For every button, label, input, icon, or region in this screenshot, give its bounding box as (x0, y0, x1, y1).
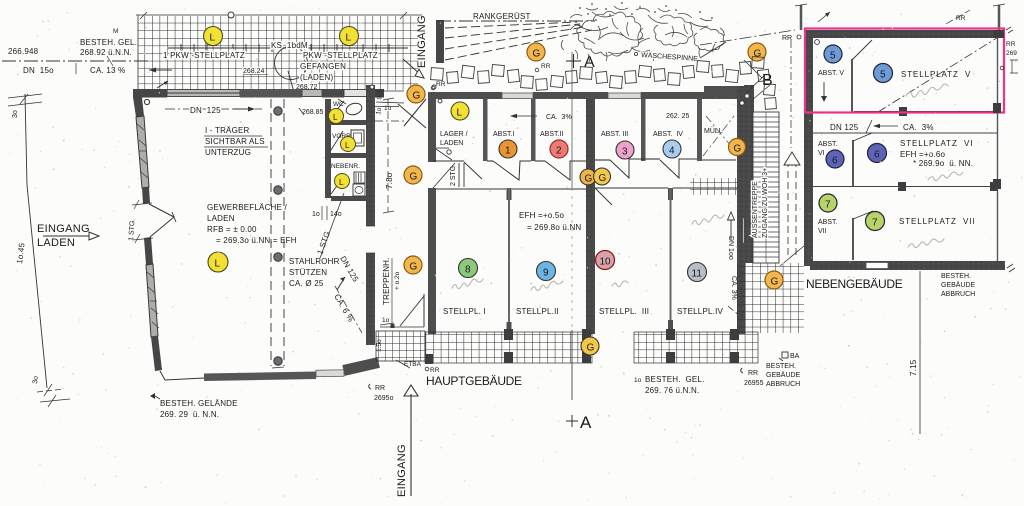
svg-text:G: G (585, 174, 593, 185)
svg-text:7: 7 (872, 218, 878, 229)
svg-text:KS 1bdM: KS 1bdM (271, 41, 308, 50)
svg-text:AUSSENTREPPE: AUSSENTREPPE (752, 181, 759, 238)
svg-text:G: G (734, 144, 742, 155)
svg-text:G: G (410, 172, 418, 183)
svg-text:DN 125: DN 125 (830, 123, 859, 132)
svg-text:STELLPL. III: STELLPL. III (599, 307, 649, 316)
svg-text:1: 1 (505, 146, 511, 157)
svg-text:BESTEH.: BESTEH. (766, 363, 796, 370)
svg-text:ABST. IV: ABST. IV (653, 131, 683, 138)
svg-text:G: G (413, 91, 421, 102)
svg-text:1o: 1o (634, 377, 642, 384)
svg-text:ABST.: ABST. (818, 219, 838, 226)
svg-text:1o: 1o (382, 317, 390, 324)
svg-text:VII: VII (818, 228, 827, 235)
svg-text:1.5o: 1.5o (376, 339, 383, 352)
svg-text:STELLPL.IV: STELLPL.IV (677, 307, 723, 316)
svg-text:RR: RR (436, 81, 446, 88)
svg-text:G: G (410, 262, 418, 273)
svg-text:9: 9 (543, 268, 549, 279)
svg-text:CA. Ø 25: CA. Ø 25 (289, 279, 324, 288)
svg-text:3o: 3o (32, 376, 40, 385)
svg-text:269: 269 (1006, 50, 1017, 57)
svg-text:RR: RR (748, 370, 758, 377)
svg-text:RR: RR (1006, 41, 1016, 48)
svg-text:G: G (533, 49, 541, 60)
svg-text:STELLPLATZ VI: STELLPLATZ VI (900, 139, 973, 148)
svg-text:DN 125: DN 125 (190, 106, 221, 115)
svg-text:6: 6 (874, 150, 880, 161)
svg-text:LADEN: LADEN (440, 140, 463, 147)
svg-text:268.24: 268.24 (243, 68, 265, 75)
svg-text:DN 1oo: DN 1oo (727, 236, 734, 260)
svg-text:L: L (210, 33, 216, 44)
svg-text:269. 29 ü. N.N.: 269. 29 ü. N.N. (160, 410, 219, 419)
svg-text:STELLPLATZ V: STELLPLATZ V (901, 70, 971, 79)
svg-text:= 269.3o ü.NN.= EFH: = 269.3o ü.NN.= EFH (216, 236, 297, 245)
svg-text:UNTERZUG: UNTERZUG (205, 148, 251, 157)
svg-text:RR: RR (541, 63, 551, 70)
svg-text:ABBRUCH: ABBRUCH (766, 381, 800, 388)
svg-text:STELLPL. I: STELLPL. I (443, 307, 486, 316)
svg-text:266.948: 266.948 (8, 47, 39, 56)
svg-text:4: 4 (669, 146, 675, 157)
svg-text:ZUGANG ZU WOH 3+: ZUGANG ZU WOH 3+ (762, 168, 769, 238)
svg-text:GEBÄUDE: GEBÄUDE (941, 281, 976, 289)
svg-text:CA. 3%: CA. 3% (903, 123, 934, 132)
svg-text:14o: 14o (330, 211, 342, 218)
svg-text:HAUPTGEBÄUDE: HAUPTGEBÄUDE (426, 374, 522, 388)
svg-text:1o: 1o (384, 105, 392, 112)
svg-text:26955: 26955 (744, 380, 764, 387)
svg-text:VI: VI (818, 150, 825, 157)
svg-text:RR: RR (430, 367, 440, 374)
svg-text:3: 3 (622, 147, 628, 158)
svg-text:7.15: 7.15 (909, 359, 918, 376)
svg-text:EFH =+o.6o: EFH =+o.6o (900, 150, 945, 159)
svg-text:LADEN: LADEN (37, 237, 75, 249)
svg-text:RR: RR (782, 35, 792, 42)
svg-text:(LADEN): (LADEN) (300, 73, 334, 82)
svg-text:G: G (587, 343, 595, 354)
svg-text:ABST. III: ABST. III (601, 131, 628, 138)
svg-text:RFB = ± 0.00: RFB = ± 0.00 (207, 225, 257, 234)
svg-text:3o: 3o (12, 110, 19, 118)
svg-text:ABST.: ABST. (818, 141, 838, 148)
svg-text:1o: 1o (312, 211, 320, 218)
svg-text:6: 6 (832, 156, 838, 167)
svg-text:PKW -STELLPLATZ: PKW -STELLPLATZ (303, 51, 378, 60)
svg-text:G: G (771, 277, 779, 288)
svg-text:2: 2 (556, 146, 562, 157)
svg-text:I - TRÄGER: I - TRÄGER (205, 126, 250, 135)
svg-text:BESTEH. GELÄNDE: BESTEH. GELÄNDE (160, 399, 238, 408)
svg-text:L: L (215, 259, 221, 270)
svg-text:CA. 13 %: CA. 13 % (90, 66, 125, 75)
svg-text:LADEN: LADEN (207, 214, 235, 223)
svg-text:NEBENGEBÄUDE: NEBENGEBÄUDE (806, 277, 903, 291)
svg-text:RANKGERÜST: RANKGERÜST (473, 12, 531, 21)
svg-text:GEBÄUDE: GEBÄUDE (766, 371, 801, 379)
svg-text:268.85: 268.85 (302, 109, 324, 116)
svg-text:STELLPLATZ VII: STELLPLATZ VII (899, 217, 975, 226)
svg-text:STÜTZEN: STÜTZEN (289, 268, 327, 277)
svg-text:* 269.9o ü. NN.: * 269.9o ü. NN. (913, 159, 973, 168)
svg-text:7: 7 (825, 200, 831, 211)
svg-text:GEWERBEFLÄCHE /: GEWERBEFLÄCHE / (207, 203, 287, 212)
svg-text:262. 25: 262. 25 (666, 113, 689, 120)
svg-text:M: M (113, 28, 118, 35)
svg-text:2 STG: 2 STG (450, 166, 457, 186)
svg-text:NEBENR.: NEBENR. (331, 163, 360, 170)
svg-text:GEFANGEN: GEFANGEN (300, 62, 346, 71)
svg-text:BESTEH. GEL.: BESTEH. GEL. (645, 375, 705, 384)
svg-text:ABST.II: ABST.II (540, 131, 563, 138)
svg-text:2695o: 2695o (374, 395, 394, 402)
svg-text:DN 15o: DN 15o (23, 66, 54, 75)
svg-text:STAHLROHR: STAHLROHR (289, 257, 340, 266)
svg-text:11: 11 (692, 269, 703, 280)
svg-text:268.92 ü.N.N.: 268.92 ü.N.N. (80, 48, 132, 57)
svg-text:7.8o: 7.8o (385, 172, 394, 189)
svg-text:EFH =+o.5o: EFH =+o.5o (519, 211, 564, 220)
svg-text:G: G (599, 173, 607, 184)
svg-text:CA. 3%: CA. 3% (546, 114, 572, 121)
svg-text:L: L (339, 178, 344, 187)
svg-text:B: B (762, 72, 773, 89)
svg-text:BESTEH. GEL.: BESTEH. GEL. (80, 38, 137, 47)
svg-text:EINGANG: EINGANG (37, 223, 90, 235)
svg-text:ABST. V: ABST. V (818, 70, 844, 77)
svg-text:+ o.2o: + o.2o (394, 271, 401, 290)
svg-text:L: L (333, 113, 338, 122)
svg-text:ETBA: ETBA (404, 361, 422, 368)
svg-text:10: 10 (600, 257, 612, 268)
svg-text:L: L (346, 33, 352, 44)
svg-text:BESTEH.: BESTEH. (941, 273, 971, 280)
svg-text:G: G (754, 49, 762, 60)
svg-text:CA. 3%: CA. 3% (730, 276, 737, 300)
svg-text:TREPPENH.: TREPPENH. (382, 257, 391, 305)
svg-text:A: A (580, 413, 592, 432)
svg-text:EINGANG: EINGANG (396, 444, 408, 497)
svg-text:8: 8 (465, 265, 471, 276)
svg-text:BA: BA (790, 353, 800, 360)
svg-text:ABBRUCH: ABBRUCH (941, 291, 975, 298)
svg-text:5: 5 (880, 70, 886, 81)
svg-text:L: L (345, 141, 350, 150)
svg-text:SICHTBAR ALS: SICHTBAR ALS (205, 137, 265, 146)
svg-text:EINGANG: EINGANG (416, 15, 428, 68)
svg-text:LAGER /: LAGER / (440, 131, 468, 138)
svg-text:L: L (457, 108, 463, 119)
svg-text:ABST.I: ABST.I (493, 131, 514, 138)
svg-text:STELLPL.II: STELLPL.II (516, 307, 559, 316)
svg-text:RR: RR (956, 15, 966, 22)
svg-text:1 PKW -STELLPLATZ: 1 PKW -STELLPLATZ (163, 51, 245, 60)
svg-text:RR: RR (375, 385, 385, 392)
svg-text:269. 76 ü.N.N.: 269. 76 ü.N.N. (645, 386, 699, 395)
svg-text:= 269.8o ü.NN: = 269.8o ü.NN (527, 223, 581, 232)
svg-text:5: 5 (830, 51, 836, 62)
